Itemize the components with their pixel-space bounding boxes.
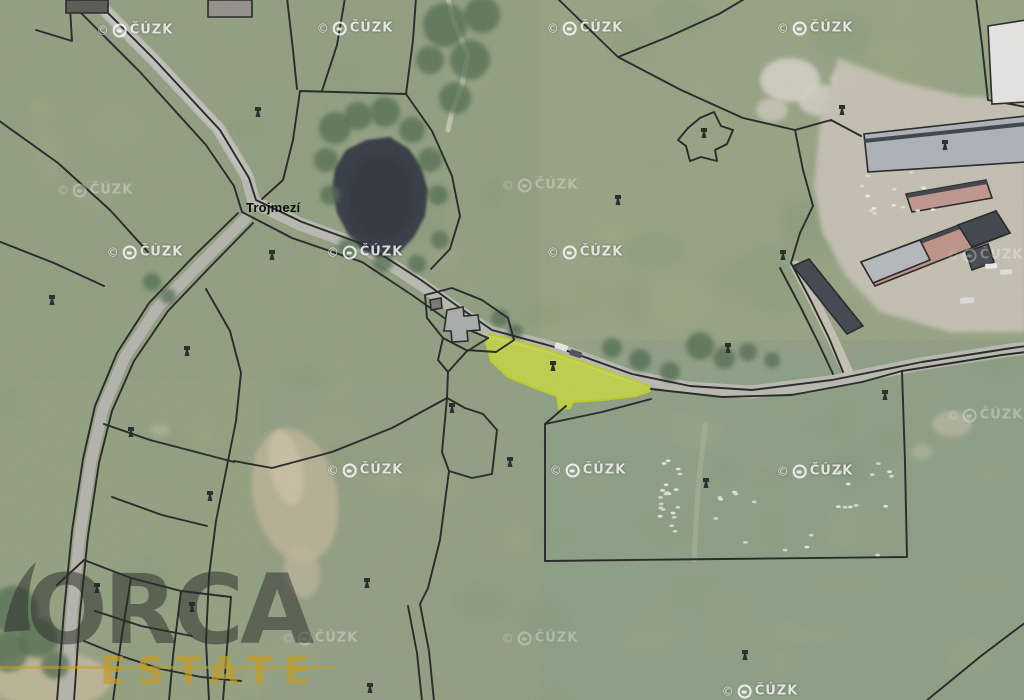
place-label-trojmezi: Trojmezí	[246, 200, 300, 215]
aerial-cadastral-map[interactable]: Trojmezí ©ČÚZK©ČÚZK©ČÚZK©ČÚZK©ČÚZK©ČÚZK©…	[0, 0, 1024, 700]
map-canvas	[0, 0, 1024, 700]
